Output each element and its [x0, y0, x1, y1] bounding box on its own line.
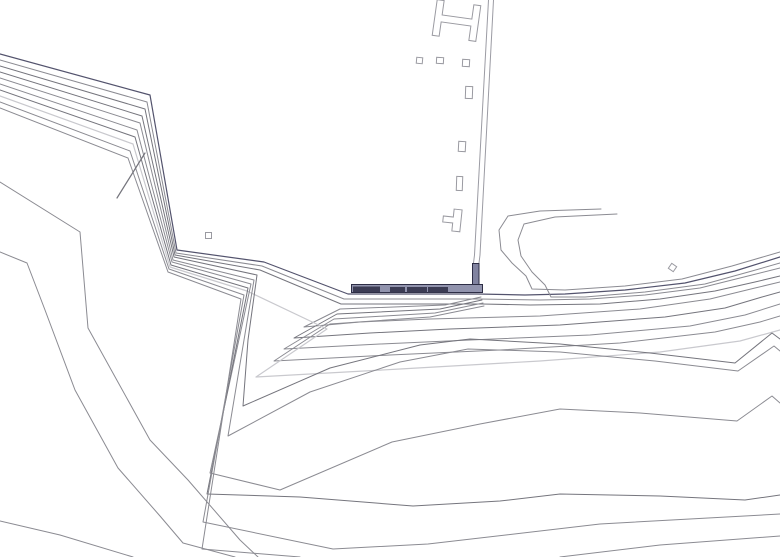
contour-map-canvas — [0, 0, 780, 557]
small-structure — [416, 57, 423, 64]
building-dark-segment — [353, 287, 380, 293]
small-structure — [465, 86, 472, 98]
h-shaped-structure — [432, 0, 481, 41]
contour-light — [0, 96, 780, 377]
small-structure — [458, 141, 466, 151]
contour-southeast-corner — [560, 536, 780, 557]
contour-hairpin-2 — [518, 214, 780, 297]
small-structure — [436, 57, 443, 63]
t-shaped-structure — [442, 208, 462, 232]
contour-building-toe — [0, 54, 780, 295]
contour-hairpin-1 — [499, 209, 780, 290]
small-structure — [206, 233, 212, 239]
building-dark-segment — [428, 287, 448, 293]
contour-west-outer-1 — [0, 182, 258, 557]
contour-valley-4 — [0, 90, 780, 506]
contour-valley-2 — [0, 78, 780, 436]
slope-tick-mark — [117, 153, 145, 198]
contour-valley-6 — [0, 108, 300, 557]
contour-southwest-corner — [0, 521, 133, 557]
contour-valley-5 — [0, 102, 780, 549]
contour-valley-1 — [0, 72, 780, 406]
small-structure — [462, 59, 469, 66]
site-plan-drawing — [0, 0, 780, 557]
building-dark-segment — [407, 287, 427, 293]
small-structure — [668, 263, 676, 271]
building-dark-segment — [390, 287, 405, 293]
contour-west-outer-2 — [0, 252, 235, 557]
small-structure — [456, 176, 462, 190]
contour-terrace-4 — [274, 306, 780, 361]
contour-fan-1 — [0, 60, 780, 300]
contour-fan-2 — [0, 66, 780, 305]
